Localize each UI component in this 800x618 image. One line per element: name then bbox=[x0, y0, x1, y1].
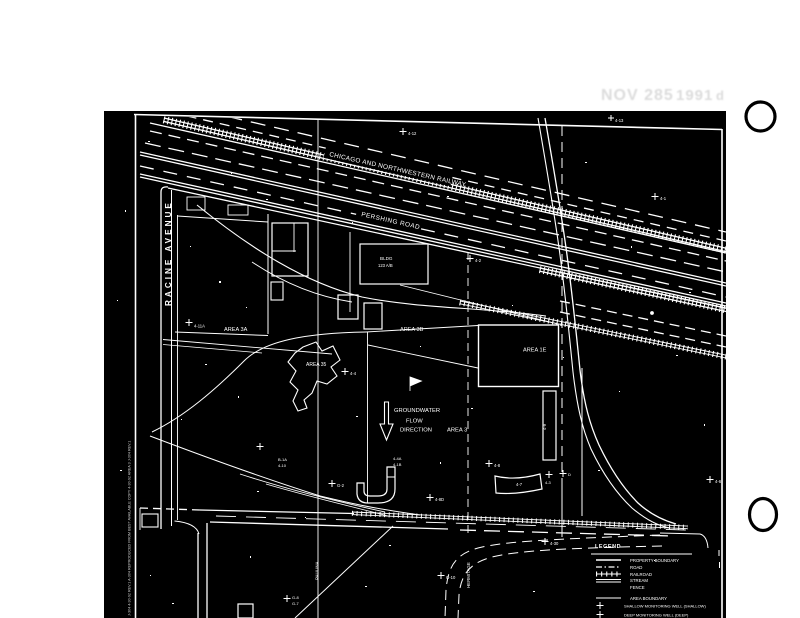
svg-text:1991: 1991 bbox=[676, 87, 713, 104]
svg-text:FENCE: FENCE bbox=[630, 585, 645, 590]
svg-text:4-30: 4-30 bbox=[550, 541, 559, 546]
svg-text:4-1B: 4-1B bbox=[393, 462, 402, 467]
svg-text:4-9: 4-9 bbox=[542, 423, 547, 430]
svg-text:J-304 4-30-92 REV.1 A-304: J-304 4-30-92 REV.1 A-304 REPRODUCED FRO… bbox=[128, 441, 132, 616]
svg-text:LEGEND: LEGEND bbox=[595, 544, 621, 550]
svg-text:AREA 3A: AREA 3A bbox=[224, 327, 248, 333]
svg-text:B-1A: B-1A bbox=[278, 457, 287, 462]
svg-text:G-7: G-7 bbox=[292, 601, 299, 606]
svg-text:RAILROAD: RAILROAD bbox=[630, 572, 652, 577]
svg-text:4-12: 4-12 bbox=[408, 131, 417, 136]
svg-text:4-3: 4-3 bbox=[545, 480, 552, 485]
svg-text:HERMITAGE: HERMITAGE bbox=[466, 562, 471, 588]
svg-text:4-4A: 4-4A bbox=[393, 456, 402, 461]
svg-text:d: d bbox=[716, 88, 724, 103]
svg-text:4-1: 4-1 bbox=[660, 196, 667, 201]
svg-text:STREAM: STREAM bbox=[630, 578, 648, 583]
svg-text:ROAD: ROAD bbox=[630, 565, 642, 570]
svg-text:4-8D: 4-8D bbox=[435, 497, 444, 502]
svg-text:AREA 3B: AREA 3B bbox=[400, 327, 424, 333]
svg-text:4-7: 4-7 bbox=[516, 482, 523, 487]
svg-text:AREA 3: AREA 3 bbox=[447, 428, 467, 434]
svg-text:RACINE AVENUE: RACINE AVENUE bbox=[164, 200, 173, 306]
svg-text:DEEP MONITORING WELL (DEEP): DEEP MONITORING WELL (DEEP) bbox=[624, 613, 689, 618]
svg-text:DIRECTION: DIRECTION bbox=[400, 428, 432, 434]
svg-text:AREA 1E: AREA 1E bbox=[523, 348, 547, 354]
svg-text:4-4: 4-4 bbox=[350, 371, 357, 376]
svg-text:D: D bbox=[568, 472, 571, 477]
svg-text:4-6: 4-6 bbox=[715, 479, 722, 484]
svg-text:4-13: 4-13 bbox=[615, 118, 624, 123]
svg-text:4-11A: 4-11A bbox=[194, 324, 205, 329]
svg-text:AREA BOUNDARY: AREA BOUNDARY bbox=[630, 596, 667, 601]
svg-text:123 A/B: 123 A/B bbox=[378, 263, 393, 268]
svg-text:G-10: G-10 bbox=[446, 575, 456, 580]
svg-text:4-2: 4-2 bbox=[475, 258, 482, 263]
svg-text:4-8: 4-8 bbox=[494, 463, 501, 468]
svg-text:PAULINA: PAULINA bbox=[315, 561, 320, 580]
svg-text:4-10: 4-10 bbox=[278, 463, 287, 468]
svg-text:NOV 285: NOV 285 bbox=[601, 87, 674, 104]
svg-text:G-2: G-2 bbox=[337, 483, 345, 488]
svg-text:GROUNDWATER: GROUNDWATER bbox=[394, 408, 440, 414]
svg-text:FLOW: FLOW bbox=[406, 419, 423, 425]
svg-text:BLDG: BLDG bbox=[380, 256, 393, 261]
svg-text:G-8: G-8 bbox=[292, 595, 299, 600]
svg-text:AREA 35: AREA 35 bbox=[306, 362, 327, 368]
svg-text:SHALLOW MONITORING WELL (SHALL: SHALLOW MONITORING WELL (SHALLOW) bbox=[624, 604, 706, 609]
